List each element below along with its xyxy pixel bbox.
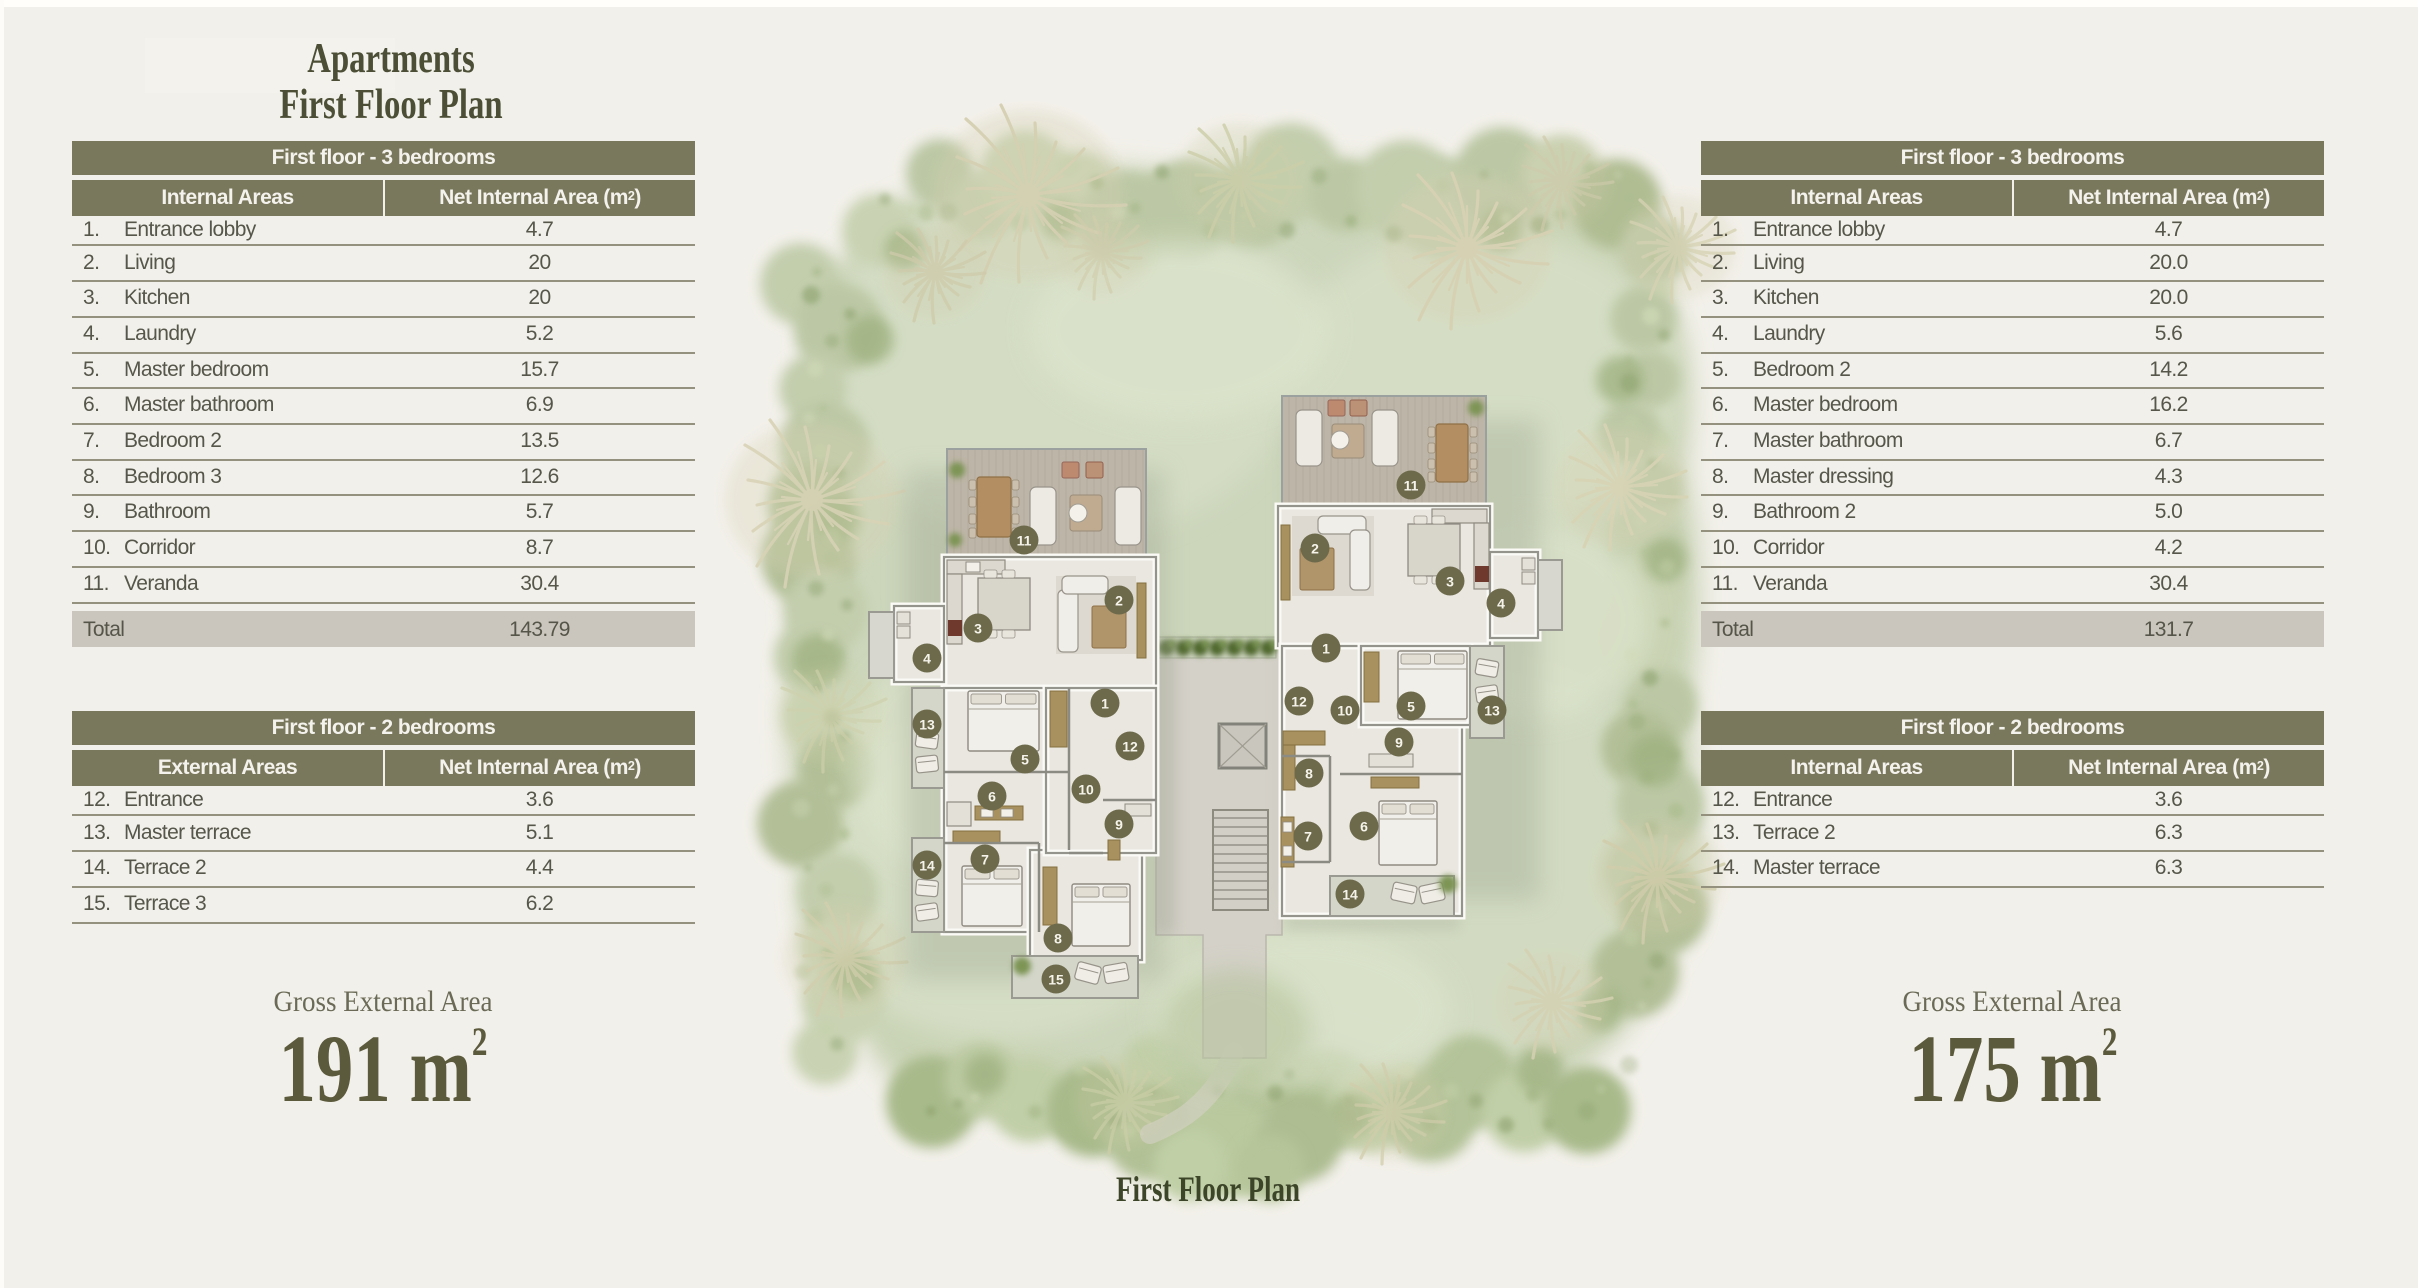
svg-text:4: 4 [923,651,931,667]
svg-text:2: 2 [1115,593,1123,609]
svg-text:7: 7 [981,852,989,868]
svg-text:15: 15 [1048,972,1064,988]
svg-text:9: 9 [1115,817,1123,833]
svg-text:9: 9 [1395,735,1403,751]
svg-text:1: 1 [1322,641,1330,657]
svg-text:2: 2 [1311,541,1319,557]
svg-text:12: 12 [1291,694,1307,710]
svg-text:8: 8 [1305,766,1313,782]
svg-text:10: 10 [1337,703,1353,719]
svg-text:3: 3 [974,621,982,637]
svg-text:12: 12 [1122,739,1138,755]
svg-text:4: 4 [1497,596,1505,612]
svg-text:13: 13 [919,717,935,733]
svg-text:6: 6 [988,789,996,805]
svg-text:10: 10 [1078,782,1094,798]
svg-text:14: 14 [919,858,935,874]
svg-text:11: 11 [1404,478,1419,494]
svg-text:13: 13 [1484,703,1500,719]
svg-text:1: 1 [1101,696,1109,712]
svg-text:11: 11 [1017,533,1032,549]
svg-text:5: 5 [1407,699,1415,715]
svg-text:14: 14 [1342,887,1358,903]
svg-text:7: 7 [1304,829,1312,845]
svg-text:8: 8 [1054,931,1062,947]
svg-text:3: 3 [1446,574,1454,590]
svg-text:6: 6 [1360,819,1368,835]
svg-text:5: 5 [1021,752,1029,768]
